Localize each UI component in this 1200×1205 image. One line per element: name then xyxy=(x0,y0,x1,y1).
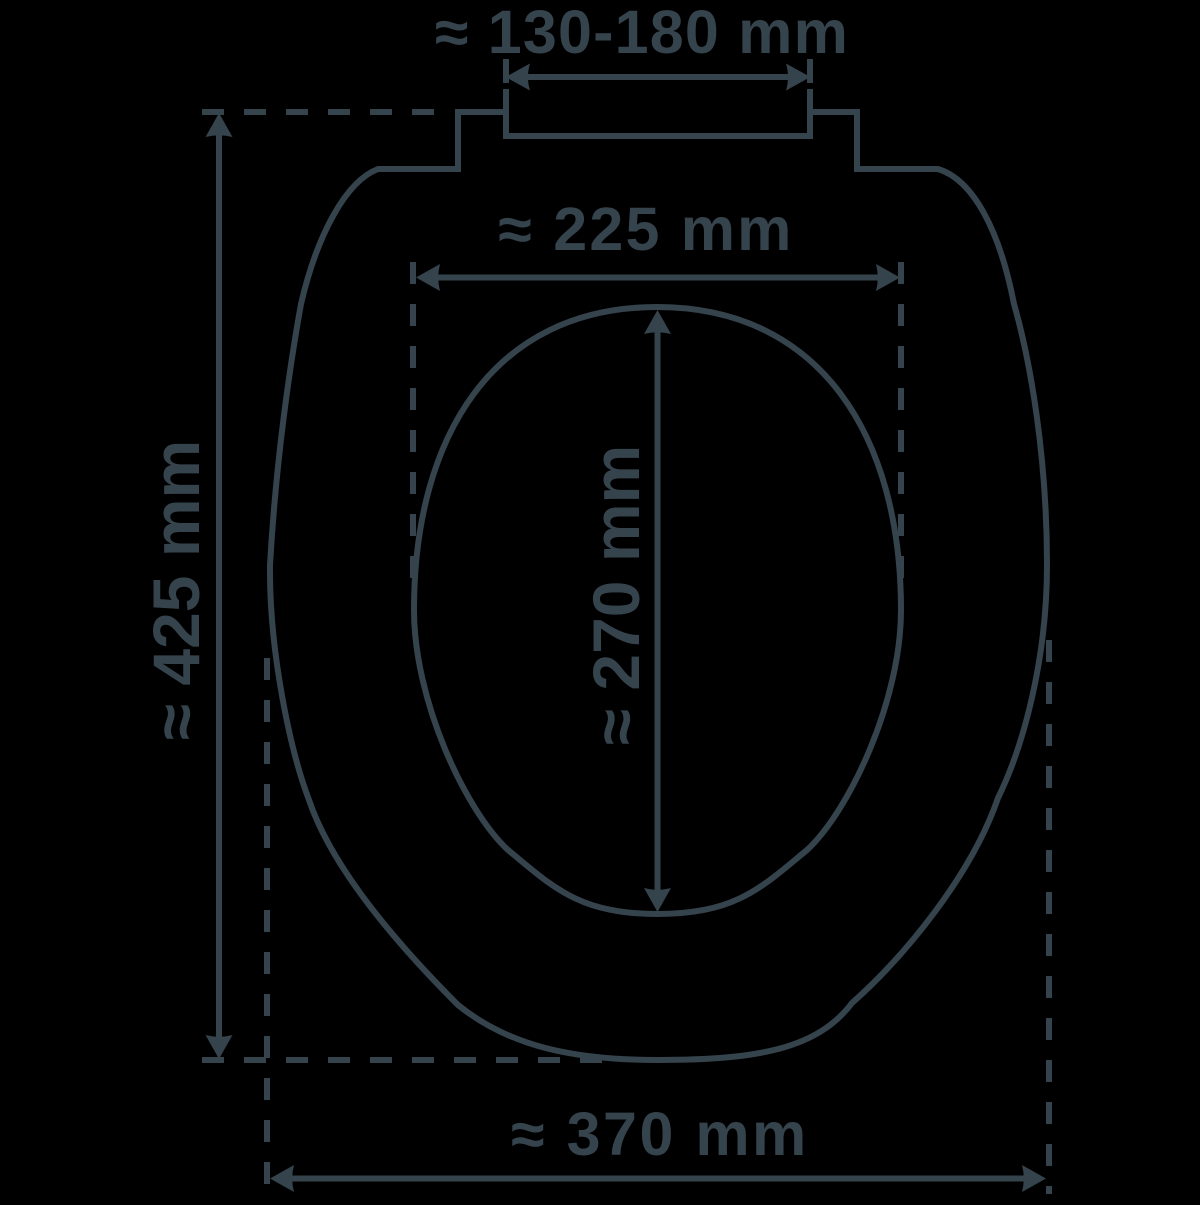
svg-text:≈ 225 mm: ≈ 225 mm xyxy=(498,195,793,263)
svg-text:≈ 425 mm: ≈ 425 mm xyxy=(139,440,213,740)
svg-text:≈ 270 mm: ≈ 270 mm xyxy=(579,445,653,745)
svg-text:≈ 370 mm: ≈ 370 mm xyxy=(511,1100,809,1168)
svg-text:≈ 130-180 mm: ≈ 130-180 mm xyxy=(435,0,849,66)
